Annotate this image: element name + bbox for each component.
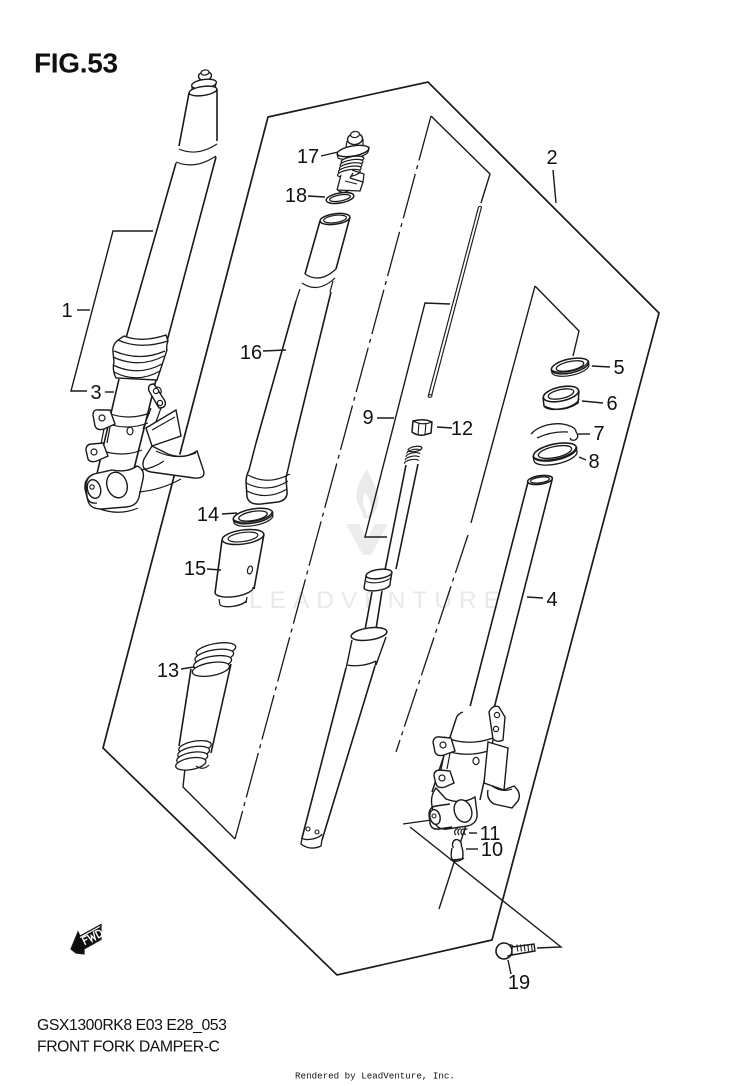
svg-text:5: 5 (613, 357, 624, 379)
svg-text:9: 9 (362, 407, 373, 429)
svg-text:FRONT FORK DAMPER-C: FRONT FORK DAMPER-C (37, 1039, 220, 1056)
svg-text:14: 14 (197, 504, 219, 526)
svg-text:16: 16 (240, 342, 262, 364)
svg-text:8: 8 (588, 451, 599, 473)
svg-text:7: 7 (593, 423, 604, 445)
svg-text:6: 6 (606, 393, 617, 415)
svg-text:Rendered by LeadVenture, Inc.: Rendered by LeadVenture, Inc. (295, 1071, 455, 1082)
svg-text:1: 1 (61, 300, 72, 322)
svg-text:19: 19 (508, 972, 530, 994)
svg-text:12: 12 (451, 418, 473, 440)
svg-text:10: 10 (481, 839, 503, 861)
svg-text:FIG.53: FIG.53 (34, 48, 118, 79)
svg-text:15: 15 (184, 558, 206, 580)
svg-text:18: 18 (285, 185, 307, 207)
svg-text:2: 2 (546, 147, 557, 169)
svg-text:13: 13 (157, 660, 179, 682)
svg-text:17: 17 (297, 146, 319, 168)
svg-text:GSX1300RK8 E03 E28_053: GSX1300RK8 E03 E28_053 (37, 1017, 227, 1034)
svg-text:4: 4 (546, 589, 557, 611)
svg-text:3: 3 (90, 382, 101, 404)
